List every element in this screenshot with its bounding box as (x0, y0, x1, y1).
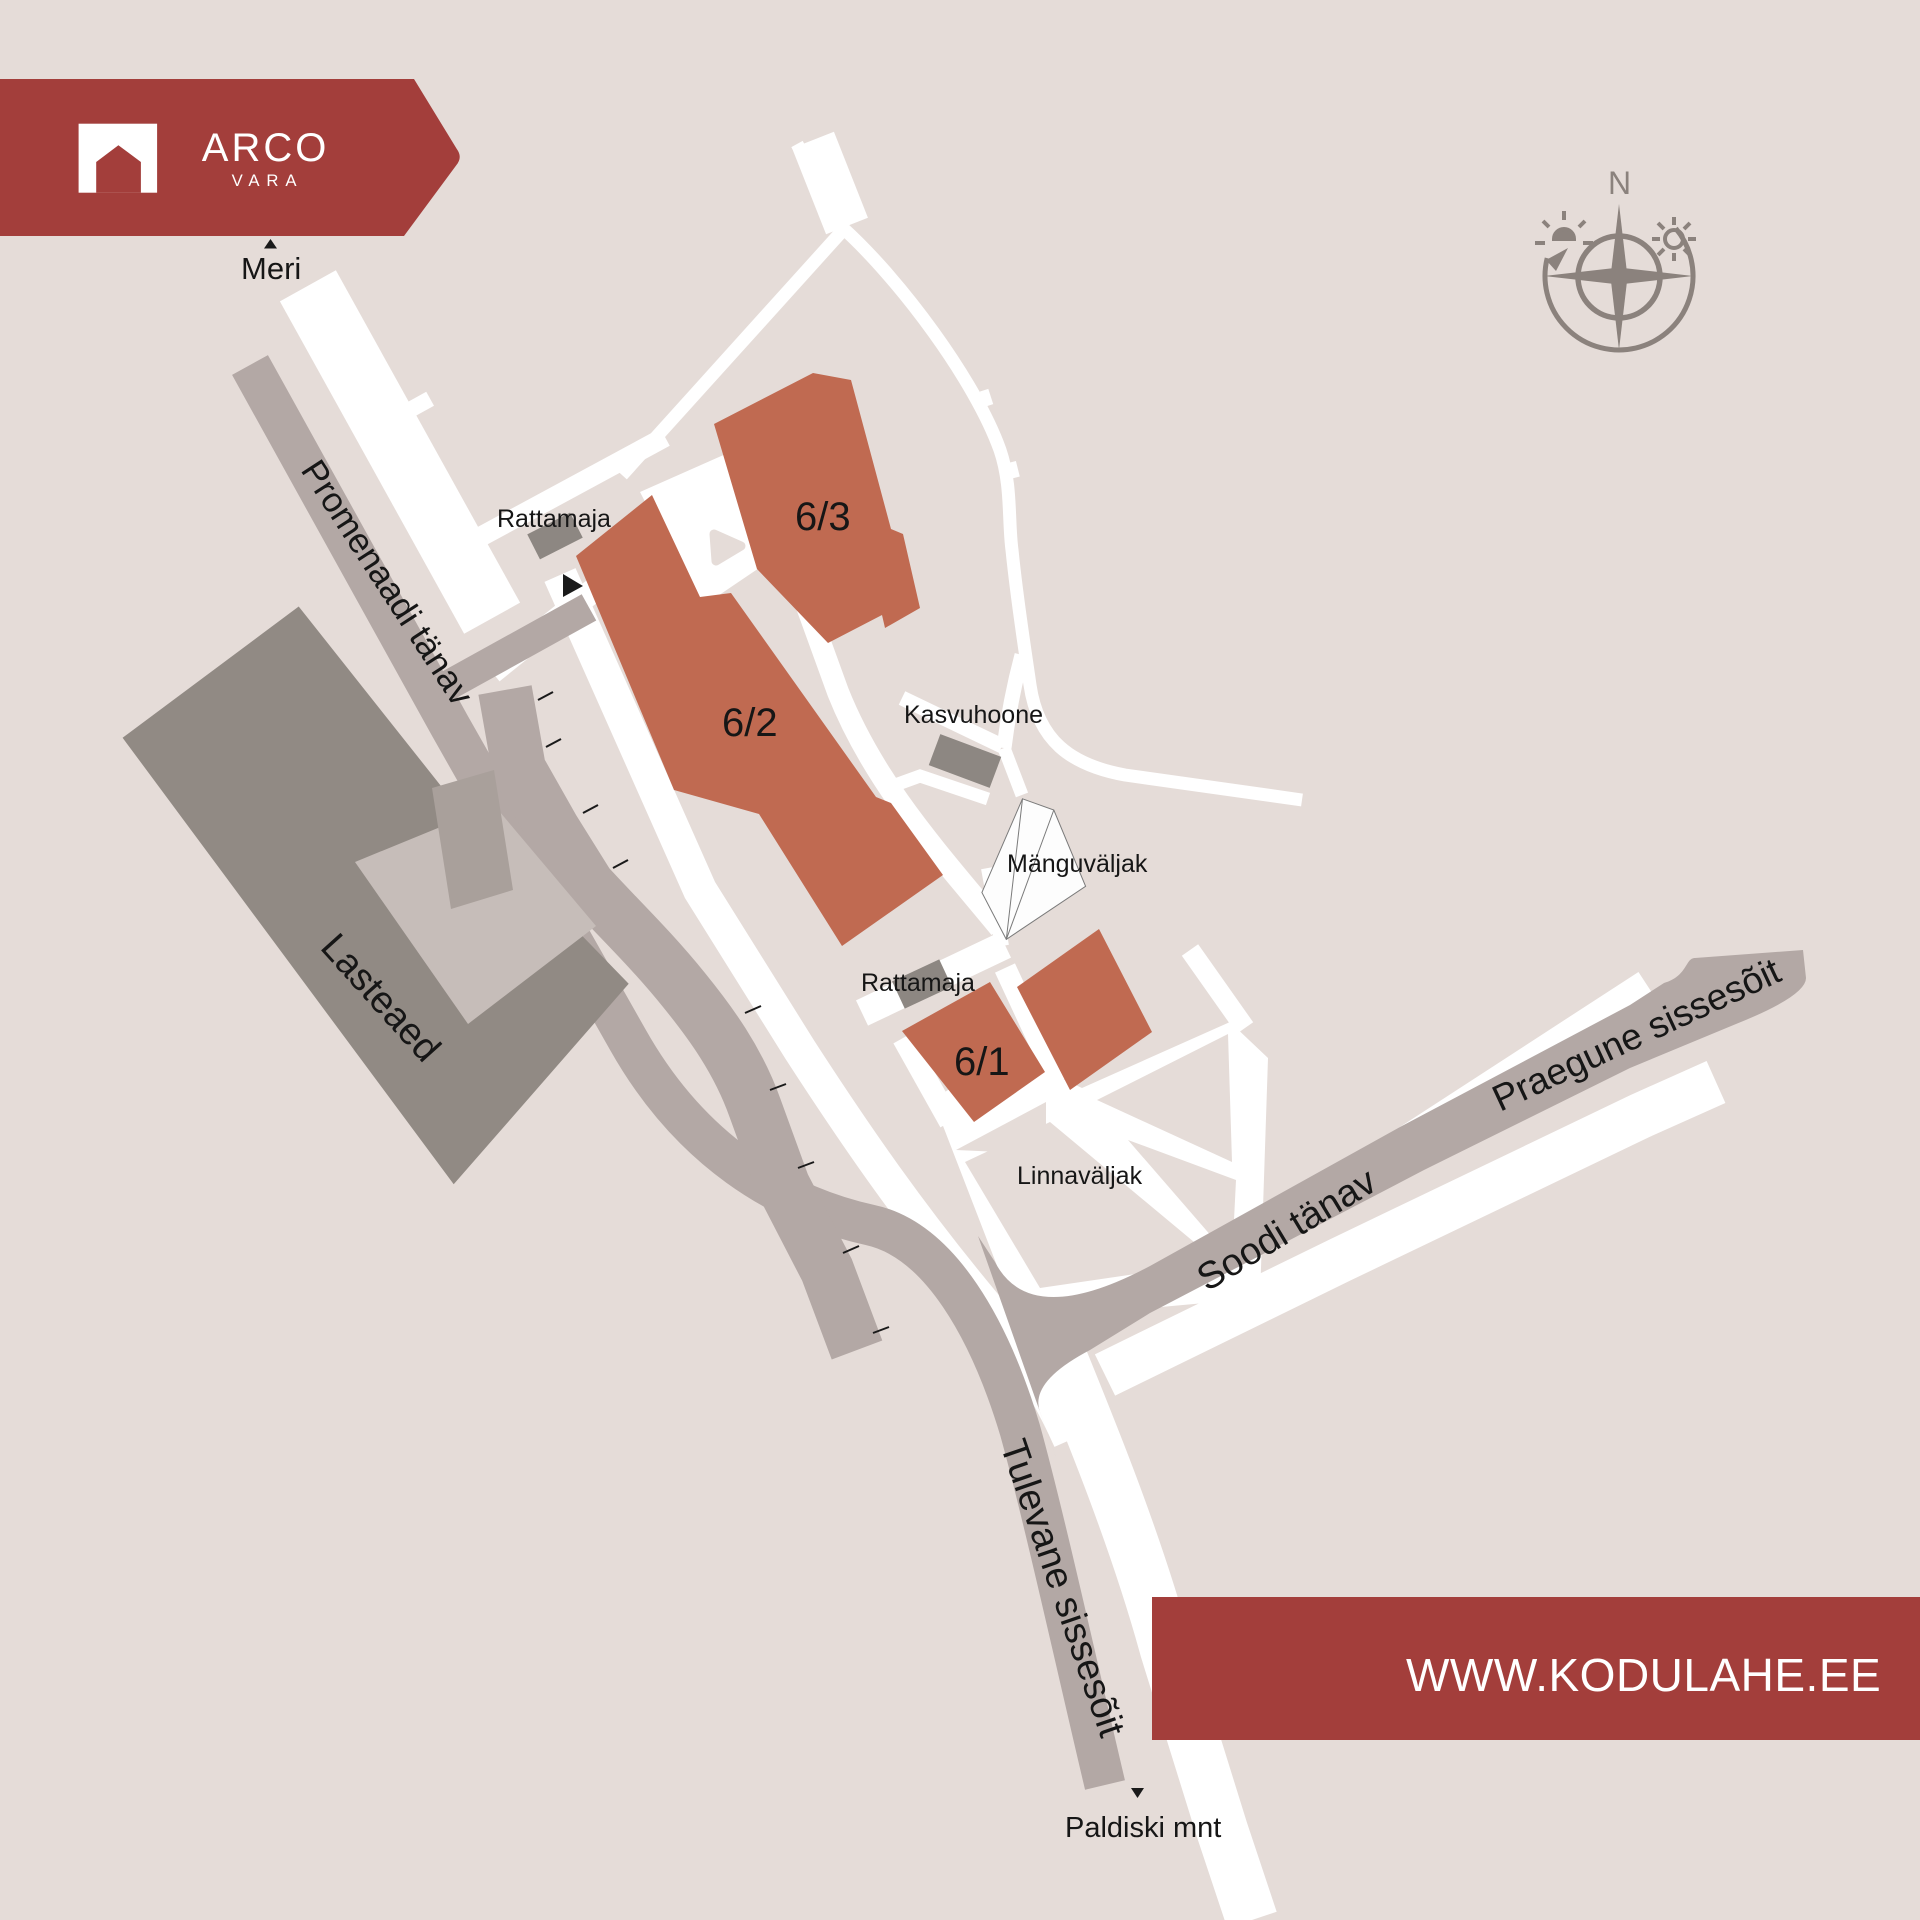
svg-text:Meri: Meri (241, 251, 301, 286)
svg-text:WWW.KODULAHE.EE: WWW.KODULAHE.EE (1406, 1649, 1881, 1701)
svg-text:VARA: VARA (232, 171, 304, 190)
svg-text:Rattamaja: Rattamaja (497, 505, 611, 533)
svg-text:Paldiski mnt: Paldiski mnt (1065, 1812, 1221, 1844)
svg-text:Linnaväljak: Linnaväljak (1017, 1162, 1143, 1190)
svg-text:Kasvuhoone: Kasvuhoone (904, 701, 1043, 729)
svg-text:Mänguväljak: Mänguväljak (1007, 850, 1148, 878)
svg-text:Rattamaja: Rattamaja (861, 969, 975, 997)
svg-text:ARCO: ARCO (202, 126, 330, 170)
svg-text:6/2: 6/2 (722, 701, 778, 745)
svg-text:6/3: 6/3 (795, 495, 851, 539)
svg-text:N: N (1608, 165, 1631, 201)
svg-text:6/1: 6/1 (954, 1040, 1010, 1084)
